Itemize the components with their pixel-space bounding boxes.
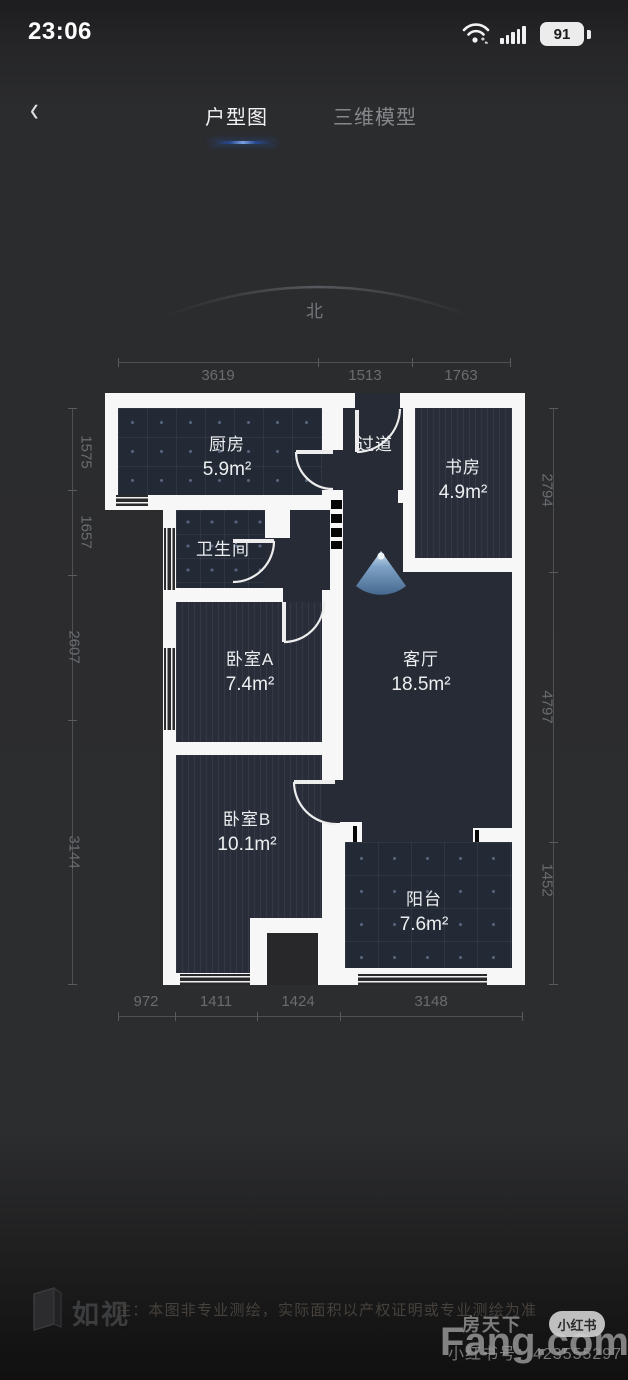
xiaohongshu-account: 小红书号：423555297	[448, 1340, 622, 1364]
door-arcs-layer	[0, 0, 628, 1380]
dim-top-1: 3619	[201, 367, 234, 384]
dim-tick	[68, 984, 77, 985]
dim-tick	[549, 984, 558, 985]
dim-bottom-3: 1424	[281, 993, 314, 1010]
dim-tick	[118, 358, 119, 367]
label-study: 书房 4.9m²	[439, 453, 488, 504]
camera-fan-apex	[378, 553, 385, 560]
rushi-logo-icon	[28, 1286, 66, 1332]
label-bedroom-b: 卧室B 10.1m²	[217, 805, 276, 856]
dim-left-1: 1575	[78, 435, 95, 468]
dim-top-2: 1513	[348, 367, 381, 384]
xiaohongshu-badge: 小红书	[549, 1311, 605, 1337]
dim-tick	[118, 1012, 119, 1021]
dim-tick	[68, 490, 77, 491]
dim-left-2: 1657	[78, 515, 95, 548]
dim-tick	[549, 842, 558, 843]
dim-bottom-1: 972	[133, 993, 158, 1010]
dim-right-3: 1452	[539, 863, 556, 896]
label-bathroom: 卫生间	[196, 535, 250, 560]
label-balcony: 阳台 7.6m²	[400, 885, 449, 936]
label-kitchen: 厨房 5.9m²	[203, 430, 252, 481]
kitchen-door-arc	[296, 452, 333, 489]
dim-tick	[340, 1012, 341, 1021]
dim-tick	[318, 358, 319, 367]
dim-left-4: 3144	[66, 835, 83, 868]
dim-tick	[549, 408, 558, 409]
dim-bottom-4: 3148	[414, 993, 447, 1010]
dim-tick	[68, 575, 77, 576]
dim-tick	[68, 720, 77, 721]
dim-tick	[412, 358, 413, 367]
dim-right-1: 2794	[539, 473, 556, 506]
dim-line-bottom	[118, 1016, 523, 1017]
label-hallway: 过道	[357, 430, 393, 455]
dim-line-top	[118, 362, 510, 363]
dim-bottom-2: 1411	[200, 993, 232, 1010]
dim-tick	[257, 1012, 258, 1021]
app-screen: 23:06 91 ‹ 户型图 三维模型 北	[0, 0, 628, 1380]
dim-tick	[175, 1012, 176, 1021]
label-living: 客厅 18.5m²	[391, 645, 450, 696]
dim-left-3: 2607	[66, 630, 83, 663]
dim-top-3: 1763	[444, 367, 477, 384]
bedroom-a-door-arc	[284, 602, 324, 642]
dim-right-2: 4797	[539, 690, 556, 723]
label-bedroom-a: 卧室A 7.4m²	[226, 645, 275, 696]
dim-line-left	[72, 408, 73, 985]
dim-tick	[522, 1012, 523, 1021]
dim-tick	[68, 408, 77, 409]
dim-tick	[549, 572, 558, 573]
bedroom-b-door-arc	[294, 782, 336, 824]
dim-tick	[510, 358, 511, 367]
floorplan-canvas[interactable]: 厨房 5.9m² 过道 书房 4.9m² 卫生间 卧室A 7.4m² 客厅 18…	[0, 0, 628, 1380]
